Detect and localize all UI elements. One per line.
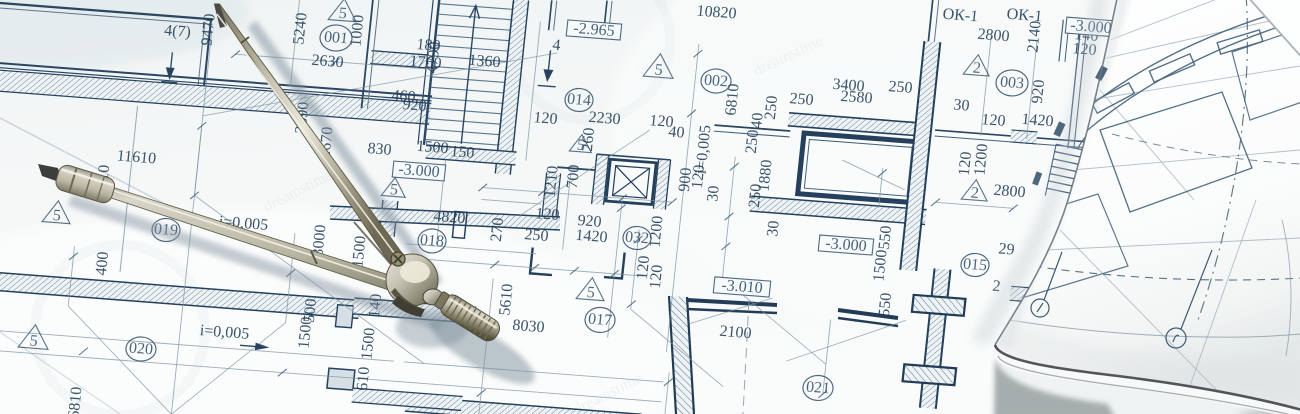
svg-text:9470: 9470: [198, 13, 218, 46]
svg-text:018: 018: [419, 232, 445, 251]
svg-text:11610: 11610: [116, 148, 157, 168]
svg-text:5610: 5610: [496, 283, 516, 316]
svg-text:1500: 1500: [416, 138, 450, 157]
svg-text:1360: 1360: [468, 52, 502, 71]
svg-text:1420: 1420: [575, 227, 609, 246]
svg-text:001: 001: [323, 29, 349, 48]
svg-text:500: 500: [301, 298, 320, 323]
svg-text:30: 30: [704, 185, 723, 202]
svg-text:700: 700: [564, 164, 583, 189]
svg-text:4790: 4790: [423, 41, 443, 74]
svg-text:2800: 2800: [977, 26, 1011, 45]
svg-text:020: 020: [128, 340, 154, 359]
svg-text:-3.000: -3.000: [824, 235, 867, 255]
svg-text:014: 014: [566, 91, 592, 110]
svg-text:2230: 2230: [588, 109, 622, 128]
svg-text:120: 120: [535, 205, 561, 224]
svg-text:920: 920: [1029, 79, 1048, 104]
svg-text:920: 920: [402, 96, 428, 115]
svg-text:1000: 1000: [347, 14, 367, 47]
svg-text:017: 017: [587, 311, 613, 330]
svg-text:830: 830: [367, 140, 393, 159]
svg-text:550: 550: [876, 225, 895, 250]
svg-text:021: 021: [805, 379, 831, 398]
svg-text:270: 270: [488, 217, 507, 242]
svg-text:29: 29: [998, 241, 1016, 259]
svg-text:5240: 5240: [290, 12, 310, 45]
svg-text:2100: 2100: [719, 323, 753, 342]
svg-text:30: 30: [953, 96, 971, 114]
svg-text:-2.965: -2.965: [572, 20, 615, 40]
svg-text:250: 250: [888, 78, 914, 97]
svg-text:120: 120: [634, 255, 653, 280]
svg-text:400: 400: [93, 251, 112, 276]
svg-text:40: 40: [748, 112, 767, 129]
svg-text:015: 015: [962, 256, 988, 275]
svg-text:120: 120: [533, 109, 559, 128]
svg-text:150: 150: [450, 143, 476, 162]
svg-text:40: 40: [668, 123, 686, 141]
svg-text:2580: 2580: [840, 88, 874, 107]
svg-text:2800: 2800: [993, 182, 1027, 201]
svg-text:2140: 2140: [1024, 20, 1044, 53]
svg-text:1420: 1420: [1021, 111, 1055, 130]
svg-text:30: 30: [764, 220, 783, 237]
svg-text:250: 250: [743, 129, 762, 154]
svg-text:120: 120: [981, 111, 1007, 130]
svg-text:1500: 1500: [358, 327, 378, 360]
svg-text:ОК-1: ОК-1: [942, 6, 979, 26]
svg-text:1500: 1500: [870, 249, 890, 282]
svg-text:610: 610: [354, 366, 373, 391]
svg-text:003: 003: [999, 74, 1025, 93]
svg-text:6810: 6810: [65, 386, 85, 414]
svg-text:-3.010: -3.010: [721, 277, 764, 297]
svg-text:002: 002: [703, 72, 729, 91]
svg-text:250: 250: [524, 226, 550, 245]
svg-text:8030: 8030: [512, 317, 546, 336]
svg-text:550: 550: [876, 292, 895, 317]
svg-text:2630: 2630: [311, 52, 345, 71]
svg-text:1200: 1200: [971, 143, 991, 176]
svg-text:250: 250: [789, 90, 815, 109]
svg-text:032: 032: [624, 229, 650, 248]
svg-text:-3.000: -3.000: [397, 161, 440, 181]
svg-text:10820: 10820: [696, 3, 738, 23]
svg-text:4(7): 4(7): [163, 22, 191, 41]
svg-text:250: 250: [746, 183, 765, 208]
svg-text:4820: 4820: [433, 208, 467, 227]
svg-text:1210: 1210: [541, 165, 561, 198]
